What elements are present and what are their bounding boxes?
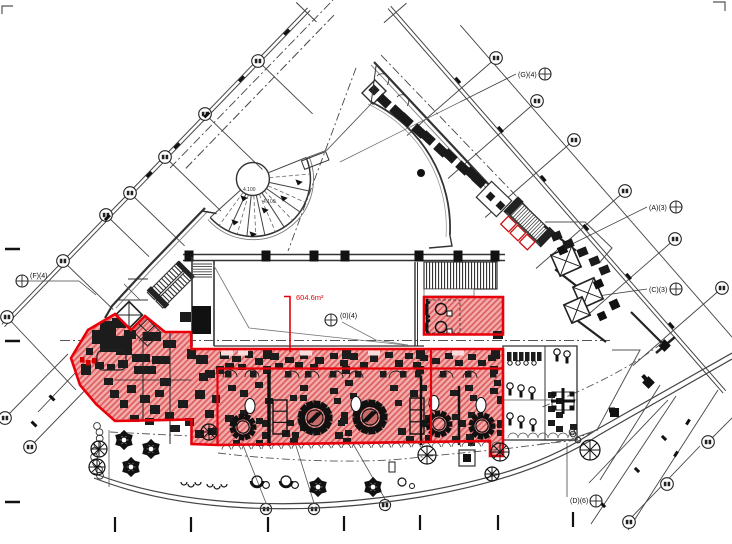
svg-text:4.100: 4.100 xyxy=(243,187,256,193)
svg-text:604.6m²: 604.6m² xyxy=(296,293,324,302)
svg-text:(D)(6): (D)(6) xyxy=(570,498,588,505)
svg-text:4.100: 4.100 xyxy=(263,199,276,205)
svg-text:(C)(3): (C)(3) xyxy=(649,287,667,294)
svg-text:(F)(4): (F)(4) xyxy=(30,273,48,280)
svg-text:(0)(4): (0)(4) xyxy=(340,313,357,320)
svg-text:(A)(3): (A)(3) xyxy=(649,205,667,212)
svg-text:(G)(4): (G)(4) xyxy=(518,72,537,79)
